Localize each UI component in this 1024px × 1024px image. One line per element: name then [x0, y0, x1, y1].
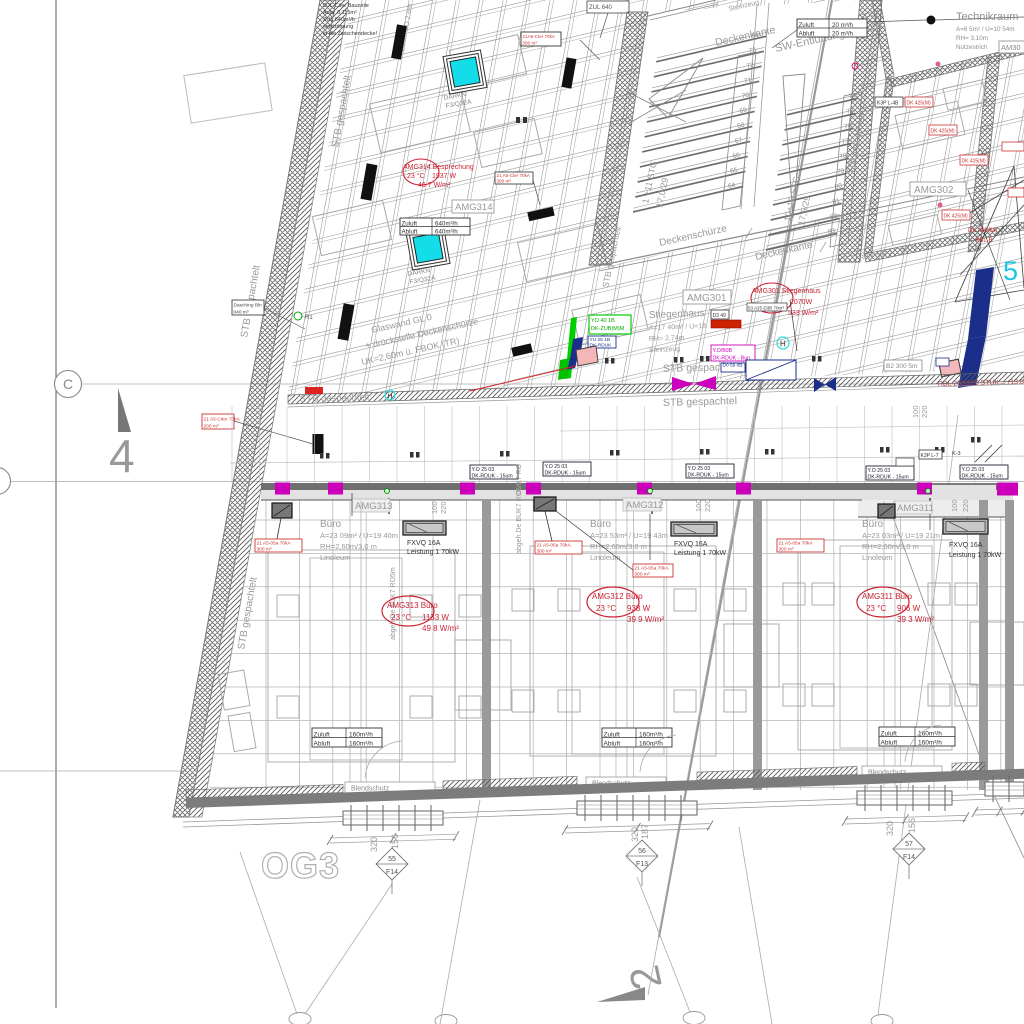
svg-text:AMG301 Stiegenhaus: AMG301 Stiegenhaus — [752, 288, 821, 295]
svg-text:938 W: 938 W — [627, 604, 651, 613]
svg-text:39 3 W/m²: 39 3 W/m² — [897, 615, 934, 624]
svg-text:Leistung 1 70kW: Leistung 1 70kW — [949, 552, 1002, 559]
svg-text:C: C — [63, 376, 73, 392]
svg-text:100: 100 — [430, 501, 439, 514]
svg-text:220: 220 — [439, 501, 448, 514]
svg-text:5: 5 — [1003, 256, 1018, 286]
svg-text:040 m³: 040 m³ — [234, 310, 249, 316]
svg-text:300 m³: 300 m³ — [635, 572, 650, 578]
svg-text:AMG311: AMG311 — [897, 503, 934, 514]
svg-text:Dasching Bln: Dasching Bln — [234, 303, 263, 309]
svg-text:DJL-Citer Bauzeile: DJL-Citer Bauzeile — [323, 3, 369, 9]
svg-text:Y.O 25 03: Y.O 25 03 — [472, 467, 495, 473]
svg-text:300 m³: 300 m³ — [523, 41, 538, 46]
svg-text:20 m³/h: 20 m³/h — [832, 31, 854, 38]
svg-text:A=6 5m² / U=10 54m: A=6 5m² / U=10 54m — [956, 26, 1014, 33]
svg-text:57: 57 — [905, 841, 913, 848]
svg-text:DK-RDUK - 15um: DK-RDUK - 15um — [472, 474, 513, 480]
svg-text:39 9 W/m²: 39 9 W/m² — [627, 615, 664, 624]
svg-text:160m³/h: 160m³/h — [349, 741, 373, 748]
svg-text:21 A5-05a 70kA: 21 A5-05a 70kA — [537, 543, 572, 549]
svg-text:Zuluft: Zuluft — [604, 731, 620, 738]
svg-text:21 A5-05a 70kA: 21 A5-05a 70kA — [257, 541, 292, 547]
svg-text:21 A5-05a 70kA: 21 A5-05a 70kA — [635, 566, 670, 572]
svg-text:Leistung 1 70kW: Leistung 1 70kW — [407, 549, 460, 556]
svg-text:Zuluft: Zuluft — [402, 220, 418, 227]
svg-text:Zuluft: Zuluft — [881, 730, 897, 737]
svg-text:AMG314: AMG314 — [455, 202, 493, 213]
svg-text:160m³/h: 160m³/h — [639, 731, 663, 738]
svg-text:200 m³: 200 m³ — [204, 424, 219, 430]
svg-text:F14: F14 — [386, 869, 398, 876]
svg-text:160m³/h: 160m³/h — [918, 740, 942, 747]
svg-text:Linoleum: Linoleum — [862, 553, 892, 562]
svg-text:Zuluft: Zuluft — [314, 731, 330, 738]
svg-text:D0 59 0B: D0 59 0B — [723, 363, 743, 369]
svg-text:Steinzeug: Steinzeug — [649, 346, 680, 354]
svg-text:20 m³/h: 20 m³/h — [832, 22, 854, 29]
svg-text:Y.O 25 03: Y.O 25 03 — [545, 464, 568, 470]
svg-text:RH=2,60m/3,0 m: RH=2,60m/3,0 m — [862, 542, 919, 551]
svg-text:53 A25-D3B 70m³: 53 A25-D3B 70m³ — [748, 306, 784, 311]
svg-text:K-3: K-3 — [952, 451, 961, 457]
svg-text:160m³/h: 160m³/h — [918, 730, 942, 737]
svg-text:RH=2,60m/3,0 m: RH=2,60m/3,0 m — [320, 542, 377, 551]
svg-text:Büro: Büro — [590, 519, 612, 530]
svg-text:23 °C: 23 °C — [391, 613, 411, 622]
svg-text:49 8 W/m²: 49 8 W/m² — [422, 624, 459, 633]
svg-text:220: 220 — [703, 499, 712, 512]
svg-text:DK-RDUK - 15um: DK-RDUK - 15um — [868, 475, 909, 481]
svg-text:RH= 3,10m: RH= 3,10m — [956, 35, 988, 42]
svg-text:160m³/h: 160m³/h — [349, 731, 373, 738]
svg-text:Y.O/B0B: Y.O/B0B — [713, 348, 733, 354]
svg-text:23 °C: 23 °C — [866, 604, 886, 613]
svg-text:Stiegenhaus: Stiegenhaus — [649, 308, 705, 321]
svg-text:156: 156 — [907, 818, 917, 833]
svg-text:906 W: 906 W — [897, 604, 921, 613]
svg-text:A=23 03m² / U=19 21m: A=23 03m² / U=19 21m — [862, 531, 940, 540]
svg-text:Aula: 0.115m²: Aula: 0.115m² — [323, 10, 357, 16]
svg-text:AMG301: AMG301 — [687, 293, 727, 304]
svg-text:DK-RDUK - 15um: DK-RDUK - 15um — [962, 474, 1003, 480]
svg-text:Büro: Büro — [862, 519, 884, 530]
svg-text:1937 W: 1937 W — [432, 173, 457, 180]
svg-text:R1: R1 — [305, 315, 313, 321]
svg-text:300 m³: 300 m³ — [537, 549, 552, 555]
svg-text:640m³/h: 640m³/h — [435, 220, 458, 227]
svg-text:Büro: Büro — [320, 519, 342, 530]
svg-text:DK 425(M): DK 425(M) — [962, 159, 987, 165]
svg-text:H: H — [388, 394, 393, 401]
svg-text:300 m³: 300 m³ — [257, 547, 272, 553]
svg-text:DK 425(M): DK 425(M) — [907, 101, 932, 107]
svg-text:DK-RDUK - 15um: DK-RDUK - 15um — [545, 471, 586, 477]
svg-text:AM30: AM30 — [1001, 43, 1021, 52]
svg-text:Y.O 25 03: Y.O 25 03 — [688, 466, 711, 472]
svg-text:Y.O 25 03: Y.O 25 03 — [868, 468, 891, 474]
svg-text:DK 425(M): DK 425(M) — [944, 214, 969, 220]
svg-text:300 m³: 300 m³ — [497, 179, 512, 184]
svg-text:DK 425(M): DK 425(M) — [968, 228, 997, 234]
svg-text:Y.O 25 03: Y.O 25 03 — [962, 467, 985, 473]
svg-text:F14: F14 — [903, 854, 915, 861]
svg-text:DK-RDUK - Bun: DK-RDUK - Bun — [713, 356, 751, 362]
svg-text:23 °C: 23 °C — [596, 604, 616, 613]
svg-text:FXVQ 16A: FXVQ 16A — [407, 540, 441, 547]
svg-text:STB gespachtel: STB gespachtel — [663, 395, 737, 409]
svg-text:2070W: 2070W — [790, 299, 813, 306]
svg-text:640m³/h: 640m³/h — [435, 229, 458, 236]
svg-text:46 7 W/m²: 46 7 W/m² — [418, 182, 451, 189]
svg-text:220: 220 — [961, 499, 970, 512]
svg-text:DUK7 RO: DUK7 RO — [516, 463, 523, 495]
svg-text:ZUL 640m³/h: ZUL 640m³/h — [323, 17, 355, 23]
svg-text:AMG313 Büro: AMG313 Büro — [387, 601, 438, 610]
svg-text:F13: F13 — [636, 861, 648, 868]
svg-text:K3P L-7: K3P L-7 — [921, 453, 939, 459]
svg-text:23 °C: 23 °C — [407, 172, 425, 180]
svg-text:55: 55 — [388, 856, 396, 863]
svg-text:Linoleum: Linoleum — [320, 553, 350, 562]
svg-text:AMG312: AMG312 — [626, 500, 664, 511]
svg-text:320: 320 — [885, 821, 895, 836]
svg-text:A=23 53m² / U=19 43m: A=23 53m² / U=19 43m — [590, 531, 668, 540]
svg-text:FXVQ 16A: FXVQ 16A — [674, 541, 708, 548]
svg-text:B2 300 5m: B2 300 5m — [886, 363, 917, 370]
svg-text:in die Zwischendecke!: in die Zwischendecke! — [323, 31, 378, 37]
svg-text:YU 25 1B: YU 25 1B — [590, 337, 611, 343]
svg-text:K3P L-4B: K3P L-4B — [877, 101, 899, 107]
svg-text:187: 187 — [640, 824, 650, 839]
svg-text:100: 100 — [950, 499, 959, 512]
svg-text:einströmung: einströmung — [323, 24, 353, 30]
svg-text:320: 320 — [630, 827, 640, 842]
svg-text:DK 425(M): DK 425(M) — [931, 129, 956, 135]
svg-text:AMG314 Besprechung: AMG314 Besprechung — [403, 164, 474, 171]
svg-text:H: H — [780, 340, 786, 349]
svg-text:220: 220 — [920, 405, 929, 418]
svg-text:533 W/m²: 533 W/m² — [788, 310, 819, 317]
svg-text:21 A5-05a 70kA: 21 A5-05a 70kA — [779, 541, 814, 547]
svg-text:160m³/h: 160m³/h — [639, 741, 663, 748]
svg-text:Abluft: Abluft — [799, 31, 815, 38]
svg-text:Leistung 1 70kW: Leistung 1 70kW — [674, 550, 727, 557]
svg-text:21 A5-Cler 70kA: 21 A5-Cler 70kA — [497, 173, 531, 178]
svg-text:56: 56 — [638, 848, 646, 855]
svg-text:156: 156 — [390, 834, 400, 849]
svg-text:Nutzestrich: Nutzestrich — [956, 44, 988, 51]
svg-text:Technikraum: Technikraum — [956, 11, 1018, 23]
svg-text:ZUL 640: ZUL 640 — [589, 5, 612, 11]
svg-text:Abluft: Abluft — [604, 741, 621, 748]
svg-text:21 A5-Citer 70kA: 21 A5-Citer 70kA — [204, 417, 241, 423]
svg-text:Abluft: Abluft — [402, 229, 418, 236]
svg-text:A=23 09m² / U=19 40m: A=23 09m² / U=19 40m — [320, 531, 398, 540]
svg-text:100: 100 — [911, 405, 920, 418]
svg-text:AMG312 Büro: AMG312 Büro — [592, 592, 643, 601]
svg-text:AMG302: AMG302 — [914, 185, 954, 196]
svg-text:21A5-Cler 70kA: 21A5-Cler 70kA — [523, 34, 556, 39]
svg-text:YO 40 1B: YO 40 1B — [591, 318, 615, 324]
svg-text:Abluft: Abluft — [881, 740, 898, 747]
svg-text:FXVQ 16A: FXVQ 16A — [949, 542, 983, 549]
svg-text:D3 49: D3 49 — [713, 313, 727, 319]
svg-text:DK-RDUK - 15um: DK-RDUK - 15um — [688, 473, 729, 479]
svg-text:RBL-B: RBL-B — [975, 238, 993, 244]
svg-text:300 m³: 300 m³ — [779, 547, 794, 553]
svg-text:Abluft: Abluft — [314, 741, 331, 748]
svg-text:320: 320 — [369, 837, 379, 852]
svg-text:DK-ZUB(M)M: DK-ZUB(M)M — [591, 326, 625, 332]
svg-text:AMG311 Büro: AMG311 Büro — [862, 592, 913, 601]
svg-text:4: 4 — [109, 430, 135, 482]
svg-text:1133 W: 1133 W — [422, 613, 449, 622]
svg-text:Linoleum: Linoleum — [590, 553, 620, 562]
svg-text:100: 100 — [694, 499, 703, 512]
svg-text:STB gespachtell: STB gespachtell — [300, 392, 369, 405]
svg-text:RH= 2,74m: RH= 2,74m — [649, 335, 685, 343]
svg-text:OG3: OG3 — [261, 845, 340, 886]
svg-text:Zuluft: Zuluft — [799, 22, 815, 29]
